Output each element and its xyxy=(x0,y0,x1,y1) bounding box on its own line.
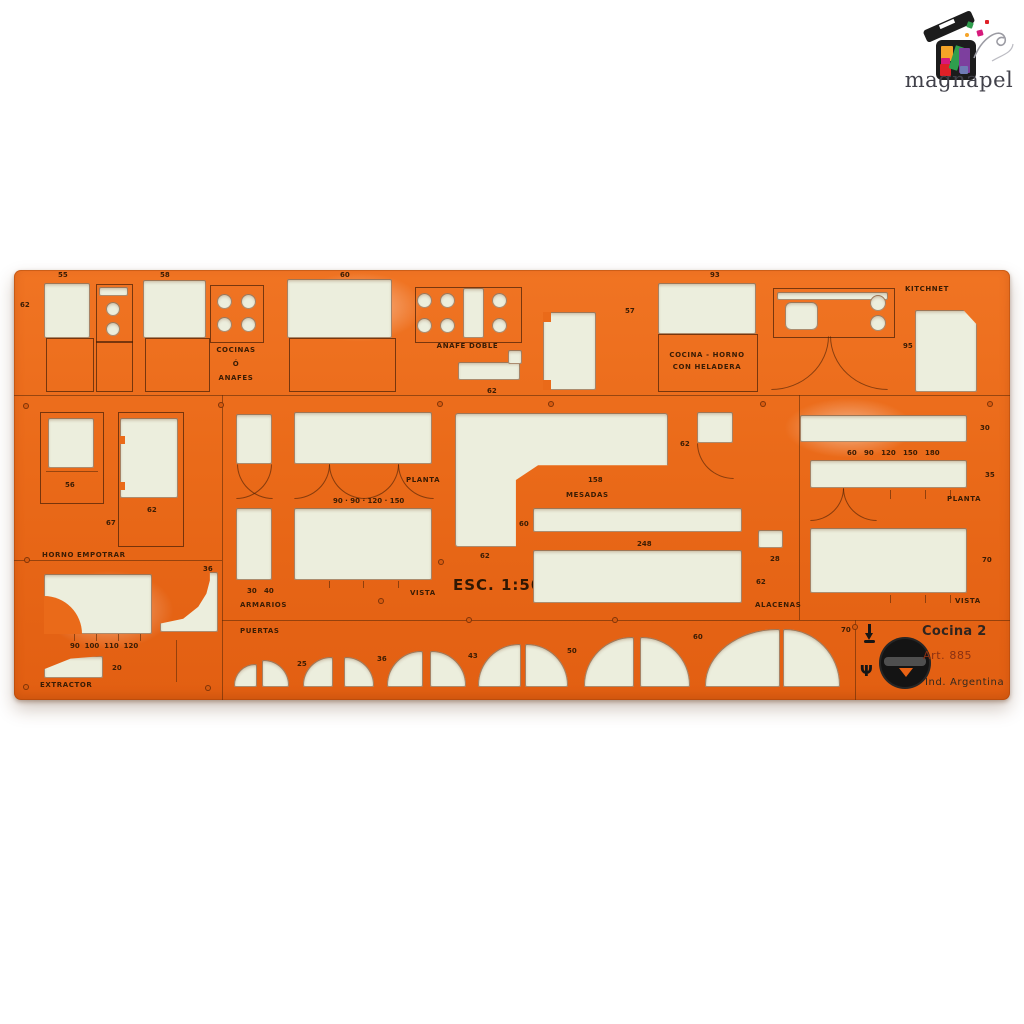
cutout-sink-lip xyxy=(508,350,522,364)
cutout-sink-side xyxy=(458,362,520,380)
dim-label: 20 xyxy=(112,665,122,672)
cutout-door-arc xyxy=(525,644,568,687)
section-label-kitchnet: KITCHNET xyxy=(905,286,949,293)
tick xyxy=(118,634,119,641)
door-arc xyxy=(810,488,844,521)
cutout-burner xyxy=(106,322,120,336)
dim-label: 70 xyxy=(982,557,992,564)
dim-label: 43 xyxy=(468,653,478,660)
label-planta: PLANTA xyxy=(947,496,981,503)
cutout-bar xyxy=(99,287,128,296)
dim-label: 50 xyxy=(567,648,577,655)
section-label-alacenas: ALACENAS xyxy=(755,602,801,609)
registration-hole xyxy=(466,617,472,623)
dim-label: 67 xyxy=(106,520,116,527)
notch xyxy=(543,312,551,322)
cutout-door-arc xyxy=(344,657,374,687)
section-label-cocina-horno: COCINA - HORNO xyxy=(658,352,756,359)
dim-label: 30 xyxy=(980,425,990,432)
tick xyxy=(398,581,399,588)
notch xyxy=(120,482,125,490)
magnapel-swirl-icon xyxy=(972,24,1016,64)
product-photo: magnapel 62 55 58 COCINAS Ó ANAFE xyxy=(0,0,1024,1024)
cutout-burner xyxy=(440,318,455,333)
notch xyxy=(120,436,125,444)
registration-hole xyxy=(548,401,554,407)
tick xyxy=(925,595,926,603)
dim-label: 95 xyxy=(903,343,913,350)
cutout-burner xyxy=(217,294,232,309)
dim-label: 57 xyxy=(625,308,635,315)
tick xyxy=(890,490,891,499)
cutout-alacena-small xyxy=(758,530,783,548)
label-vista: VISTA xyxy=(410,590,436,597)
confetti-orange xyxy=(965,33,969,37)
outline-stove-front xyxy=(145,338,210,392)
outline-stove-front xyxy=(96,341,133,392)
section-label-anafe-doble: ANAFE DOBLE xyxy=(415,343,520,350)
section-label-cocinas: Ó xyxy=(210,361,262,368)
dim-label: 90 100 110 120 xyxy=(70,643,138,650)
template-title: Cocina 2 xyxy=(922,625,987,638)
stencil-template: 62 55 58 COCINAS Ó ANAFES 60 ANAFE DOBLE xyxy=(14,270,1010,700)
section-label-cocinas: COCINAS xyxy=(210,347,262,354)
cutout-stove xyxy=(143,280,206,338)
cutout-burner xyxy=(870,295,886,311)
dim-label: 158 xyxy=(588,477,603,484)
cutout-horno xyxy=(48,418,94,468)
dim-label: 62 xyxy=(680,441,690,448)
cutout-door-arc xyxy=(705,629,780,687)
cutout-door-arc xyxy=(478,644,521,687)
tick xyxy=(140,634,141,641)
outline-stove-front xyxy=(46,338,94,392)
cutout-burner xyxy=(241,294,256,309)
cutout-stove xyxy=(44,283,90,338)
cutout-burner xyxy=(106,302,120,316)
dim-label: 70 xyxy=(841,627,851,634)
dim-label: 60 xyxy=(693,634,703,641)
section-label-armarios: ARMARIOS xyxy=(240,602,287,609)
cutout-door-arc xyxy=(783,629,840,687)
cutout-alacena-top xyxy=(800,415,967,442)
divider xyxy=(222,395,223,700)
scale-label: ESC. 1:50 xyxy=(453,578,542,593)
section-label-puertas: PUERTAS xyxy=(240,628,280,635)
cutout-cocina-horno xyxy=(658,283,756,334)
cutout-burner xyxy=(417,293,432,308)
cutout-burner xyxy=(417,318,432,333)
cutout-hood-curve xyxy=(160,572,218,632)
door-arc xyxy=(843,488,877,521)
door-arc xyxy=(329,464,365,499)
section-label-horno-empotrar: HORNO EMPOTRAR xyxy=(42,552,126,559)
outline-stove-front xyxy=(289,338,396,392)
dim-label: 62 xyxy=(20,302,30,309)
divider xyxy=(855,620,856,700)
dim-label: 58 xyxy=(160,272,170,279)
door-arc xyxy=(294,464,330,499)
tick xyxy=(950,595,951,603)
pen-nib-icon xyxy=(863,624,877,644)
cutout-anafe-center xyxy=(463,288,484,338)
label-planta: PLANTA xyxy=(406,477,440,484)
cutout-door-arc xyxy=(387,651,423,687)
dim-label: 28 xyxy=(770,556,780,563)
tick xyxy=(329,581,330,588)
cutout-fridge-side xyxy=(543,312,596,390)
label-vista: VISTA xyxy=(955,598,981,605)
cutout-burner xyxy=(440,293,455,308)
cutout-burner xyxy=(217,317,232,332)
cutout-burner xyxy=(492,293,507,308)
dim-label: 60 xyxy=(340,272,350,279)
dim-label: 248 xyxy=(637,541,652,548)
cutout-armario-vista xyxy=(236,508,272,580)
dim-label: 62 xyxy=(480,553,490,560)
magnapel-logo xyxy=(895,10,1020,110)
dim-label: 35 xyxy=(985,472,995,479)
registration-hole xyxy=(987,401,993,407)
dim-label: 36 xyxy=(377,656,387,663)
cutout-door-arc xyxy=(430,651,466,687)
dim-line xyxy=(46,471,98,472)
tick xyxy=(925,490,926,499)
cutout-mesada-vista xyxy=(533,550,742,603)
magnapel-wordmark: magnapel xyxy=(899,68,1019,92)
dim-label: 36 xyxy=(203,566,213,573)
registration-hole xyxy=(23,403,29,409)
registration-hole xyxy=(23,684,29,690)
cutout-mesada-bar xyxy=(533,508,742,532)
cutout-stove-large xyxy=(287,279,392,338)
drafting-symbol-icon: Ψ xyxy=(860,662,873,680)
section-label-extractor: EXTRACTOR xyxy=(40,682,92,689)
registration-hole xyxy=(24,557,30,563)
tick xyxy=(363,581,364,588)
dim-label: 55 xyxy=(58,272,68,279)
registration-hole xyxy=(852,624,858,630)
dim-label: 62 xyxy=(756,579,766,586)
cutout-door-arc xyxy=(303,657,333,687)
cutout-alacena-planta xyxy=(810,460,967,488)
dim-label: 93 xyxy=(710,272,720,279)
registration-hole xyxy=(438,559,444,565)
cutout-burner xyxy=(492,318,507,333)
cutout-armario-vista xyxy=(294,508,432,580)
dim-label: 60 xyxy=(519,521,529,528)
door-arc xyxy=(830,336,888,390)
cutout-heladera-plan xyxy=(697,412,733,443)
divider xyxy=(14,560,222,561)
cutout-alacena-vista xyxy=(810,528,967,593)
cutout-door-arc xyxy=(262,660,289,687)
cutout-door-arc xyxy=(234,664,257,687)
dim-label: 62 xyxy=(487,388,497,395)
cutout-kitchnet-sink xyxy=(785,302,818,330)
door-arc xyxy=(697,443,734,479)
registration-hole xyxy=(378,598,384,604)
dim-label: 60 90 120 150 180 xyxy=(847,450,940,457)
cutout-burner xyxy=(870,315,886,331)
cutout-horno xyxy=(120,418,178,498)
door-arc xyxy=(363,464,399,499)
brand-logo-circle xyxy=(879,637,931,689)
section-label-cocinas: ANAFES xyxy=(210,375,262,382)
section-label-cocina-horno: CON HELADERA xyxy=(658,364,756,371)
tick xyxy=(74,634,75,641)
outline-stove-4burner xyxy=(210,285,264,343)
tick xyxy=(890,595,891,603)
door-arc xyxy=(771,336,829,390)
dim-label: 30 40 xyxy=(247,588,274,595)
cutout-door-arc xyxy=(584,637,634,687)
dim-label: 90 · 90 · 120 · 150 xyxy=(333,498,404,505)
section-label-mesadas: MESADAS xyxy=(566,492,609,499)
cutout-armario-plan xyxy=(236,414,272,464)
dim-label: 56 xyxy=(65,482,75,489)
notch xyxy=(543,380,551,390)
cutout-door-arc xyxy=(640,637,690,687)
tick xyxy=(96,634,97,641)
dim-label: 25 xyxy=(297,661,307,668)
registration-hole xyxy=(612,617,618,623)
registration-hole xyxy=(205,685,211,691)
cutout-fridge-tall xyxy=(915,310,977,392)
registration-hole xyxy=(437,401,443,407)
cutout-burner xyxy=(241,317,256,332)
template-article: Art. 885 xyxy=(923,650,972,661)
registration-hole xyxy=(218,402,224,408)
cutout-hood-small xyxy=(44,656,103,678)
cutout-armario-plan xyxy=(294,412,432,464)
dim-line xyxy=(176,640,177,682)
template-origin: Ind. Argentina xyxy=(925,678,1004,688)
divider xyxy=(14,395,1010,396)
dim-label: 62 xyxy=(147,507,157,514)
registration-hole xyxy=(760,401,766,407)
